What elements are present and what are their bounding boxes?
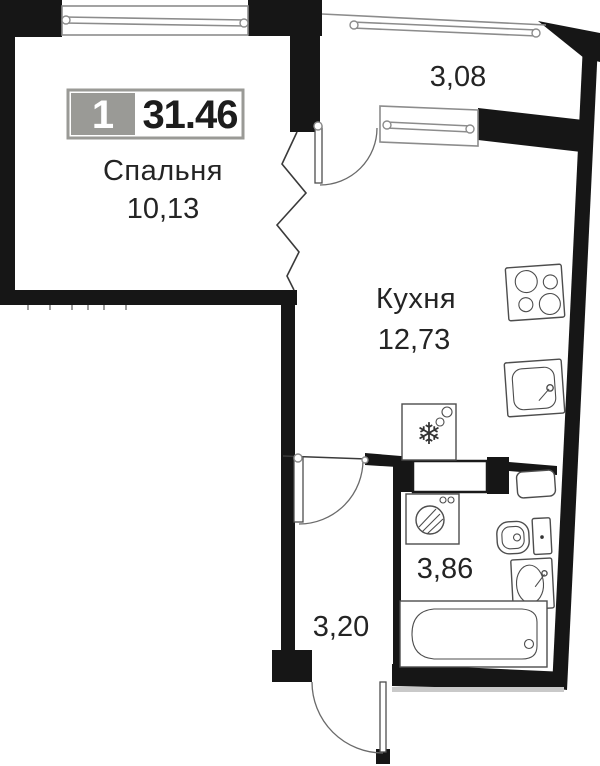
- unit-number: 1: [92, 93, 114, 137]
- glazing-end: [350, 21, 358, 29]
- open-plan-zigzag-boundary: [277, 132, 306, 290]
- unit-badge: 1 31.46: [68, 90, 243, 138]
- window-glazing: [64, 17, 246, 20]
- snowflake-icon: ❄: [416, 418, 441, 451]
- wall-kitchen-balcony: [478, 108, 592, 153]
- wall-north-left: [0, 0, 62, 37]
- room-label-bedroom: Спальня: [103, 155, 223, 187]
- wall-bedroom-south: [0, 290, 297, 305]
- wall-west: [0, 0, 15, 305]
- room-label-kitchen: Кухня: [376, 283, 456, 315]
- door-leaf: [380, 682, 386, 752]
- window-frame: [62, 6, 248, 35]
- door-arc: [320, 128, 377, 185]
- wall-hall-west-foot: [272, 650, 312, 682]
- bathroom-door: [413, 461, 487, 492]
- drum: [416, 506, 444, 534]
- window-end: [383, 121, 391, 129]
- toilet: [496, 518, 552, 557]
- bedroom-window: [62, 6, 248, 35]
- water-heater: [516, 470, 556, 499]
- wall-bath-south: [392, 664, 566, 690]
- radiator-ticks: [28, 305, 126, 310]
- room-area-hallway: 3,20: [313, 611, 369, 643]
- washing-machine: [406, 494, 459, 544]
- bath-door-jamb-right: [487, 457, 509, 494]
- window-glazing: [64, 23, 246, 26]
- door-arc: [312, 682, 383, 753]
- room-area-bedroom: 10,13: [127, 193, 200, 225]
- wall-bedroom-east: [290, 28, 320, 132]
- window-end: [62, 16, 70, 24]
- door-hinge: [294, 454, 302, 462]
- door-leaf: [315, 126, 322, 183]
- fridge: ❄: [402, 404, 456, 460]
- window-glazing: [386, 122, 471, 126]
- glazing-end: [532, 29, 540, 37]
- stove-hob: [505, 264, 565, 321]
- window-glazing: [386, 128, 471, 132]
- balcony-glazing: [322, 14, 546, 37]
- window-end: [240, 19, 248, 27]
- door-leaf: [294, 457, 303, 522]
- door-hinge: [314, 122, 322, 130]
- door-arc: [299, 459, 363, 524]
- floor-plan: ❄ 1 31.46 Спальня 10,13: [0, 0, 600, 766]
- window-end: [466, 125, 474, 133]
- bath-door-jamb-left: [401, 456, 413, 492]
- room-area-bathroom: 3,86: [417, 553, 473, 585]
- interior-door-hall: [294, 454, 368, 524]
- entrance-door: [312, 682, 386, 753]
- balcony-door: [314, 122, 377, 185]
- room-area-kitchen: 12,73: [378, 324, 451, 356]
- kitchen-sink: [504, 359, 565, 417]
- total-area: 31.46: [142, 93, 237, 137]
- door-jamb-dot: [362, 457, 368, 463]
- wall-hall-west: [281, 300, 295, 682]
- room-area-balcony: 3,08: [430, 61, 486, 93]
- wall-shadow: [392, 687, 564, 692]
- bathtub: [400, 601, 547, 667]
- balcony-kitchen-window: [380, 106, 478, 146]
- floor-plan-svg: ❄ 1 31.46 Спальня 10,13: [0, 0, 600, 766]
